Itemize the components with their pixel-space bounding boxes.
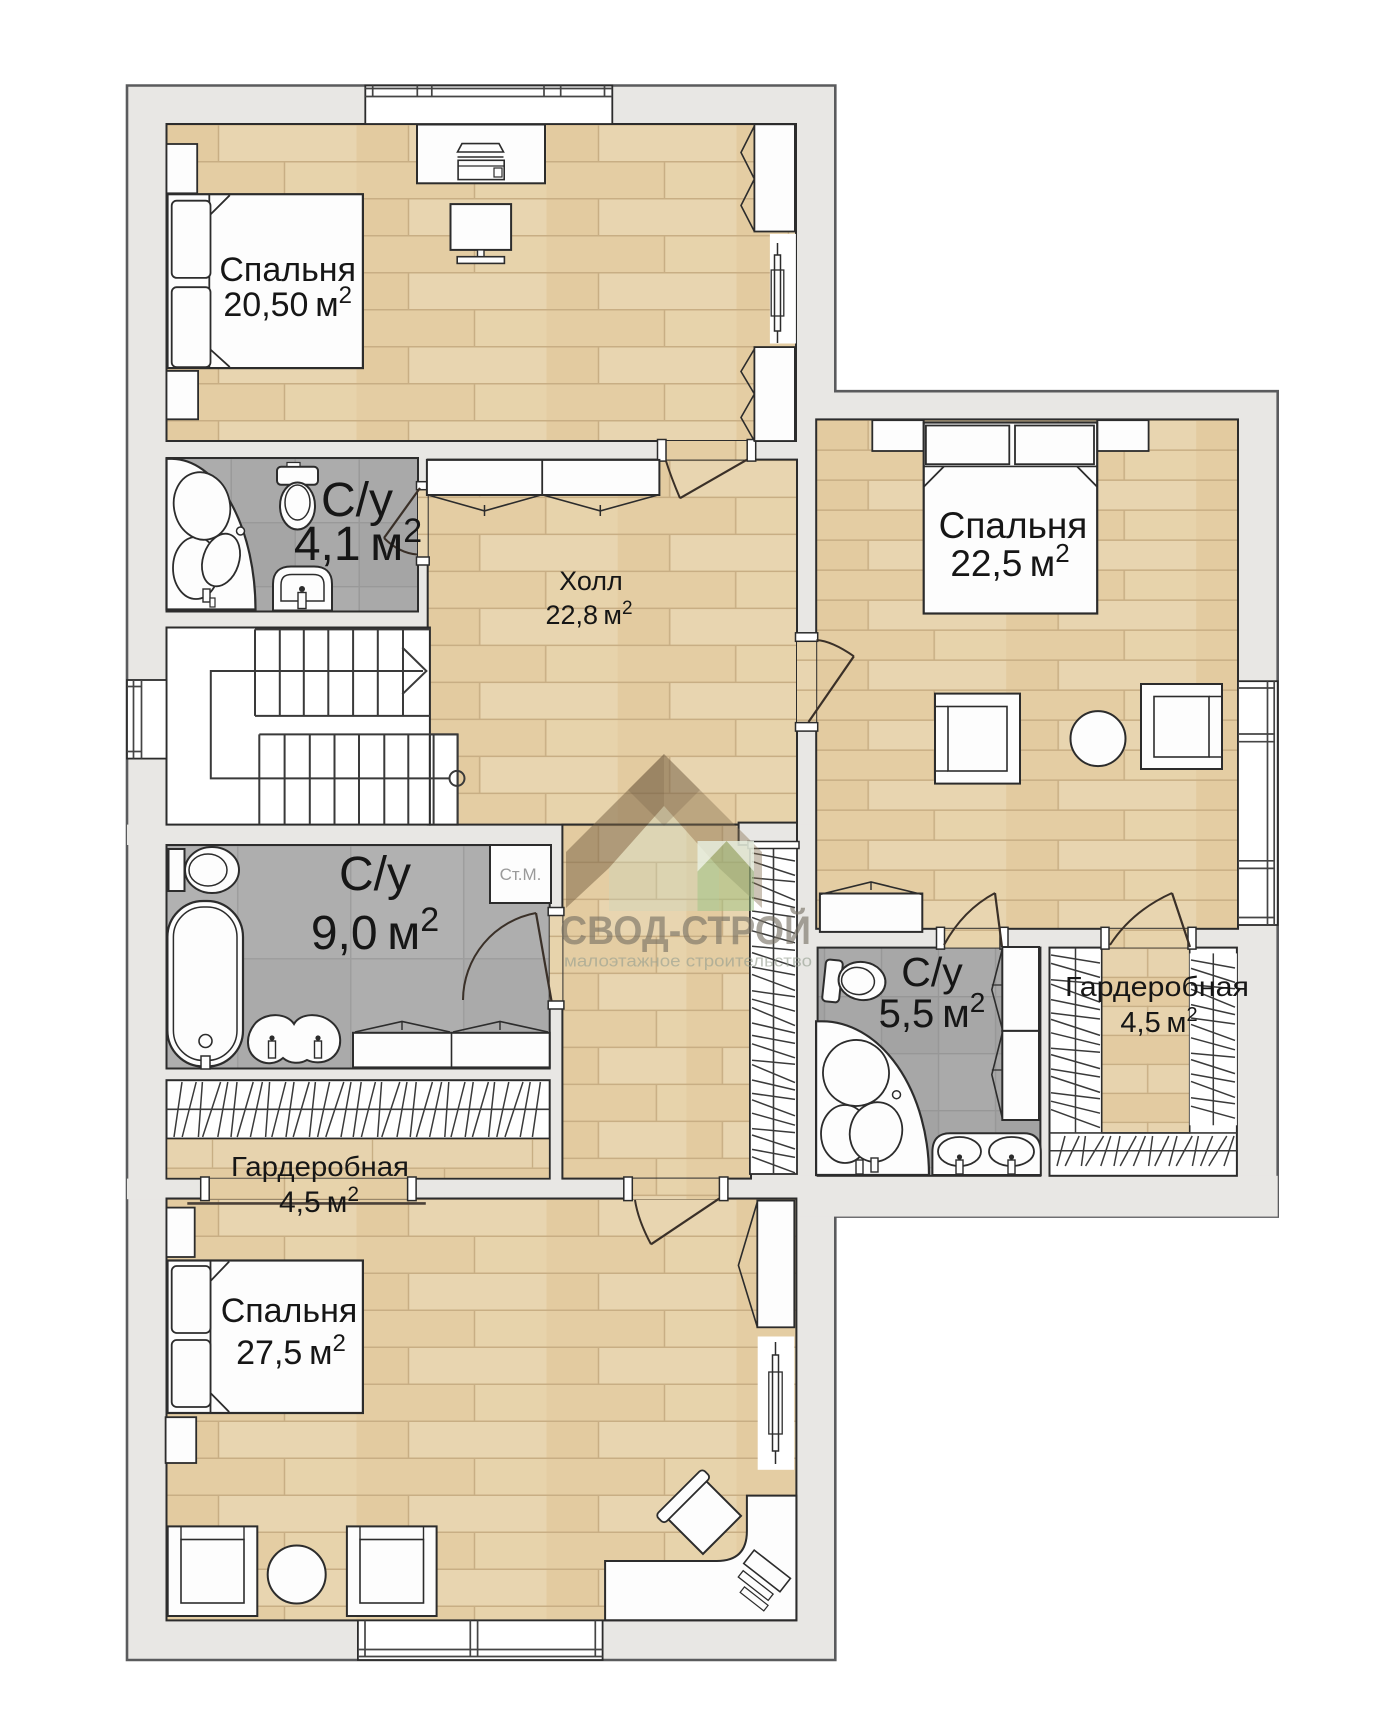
svg-text:4,1 м2: 4,1 м2: [294, 512, 422, 571]
svg-text:Спальня: Спальня: [221, 1292, 358, 1330]
svg-text:27,5 м2: 27,5 м2: [236, 1330, 346, 1372]
svg-text:20,50 м2: 20,50 м2: [223, 282, 352, 324]
svg-text:малоэтажное строительство: малоэтажное строительство: [564, 952, 812, 971]
svg-text:СВОД-СТРОЙ: СВОД-СТРОЙ: [560, 907, 811, 953]
svg-text:Гардеробная: Гардеробная: [1065, 971, 1249, 1002]
svg-text:22,8 м2: 22,8 м2: [545, 598, 632, 630]
svg-text:Холл: Холл: [559, 566, 623, 596]
svg-text:4,5 м2: 4,5 м2: [1120, 1004, 1197, 1039]
svg-text:С/у: С/у: [339, 848, 411, 901]
svg-text:4,5 м2: 4,5 м2: [279, 1183, 359, 1219]
svg-text:9,0 м2: 9,0 м2: [311, 901, 439, 960]
svg-text:Спальня: Спальня: [219, 251, 356, 289]
svg-text:Гардеробная: Гардеробная: [231, 1151, 409, 1182]
svg-text:22,5 м2: 22,5 м2: [950, 538, 1069, 584]
svg-text:Ст.М.: Ст.М.: [500, 865, 542, 884]
svg-text:С/у: С/у: [901, 949, 963, 995]
svg-text:5,5 м2: 5,5 м2: [879, 987, 986, 1036]
